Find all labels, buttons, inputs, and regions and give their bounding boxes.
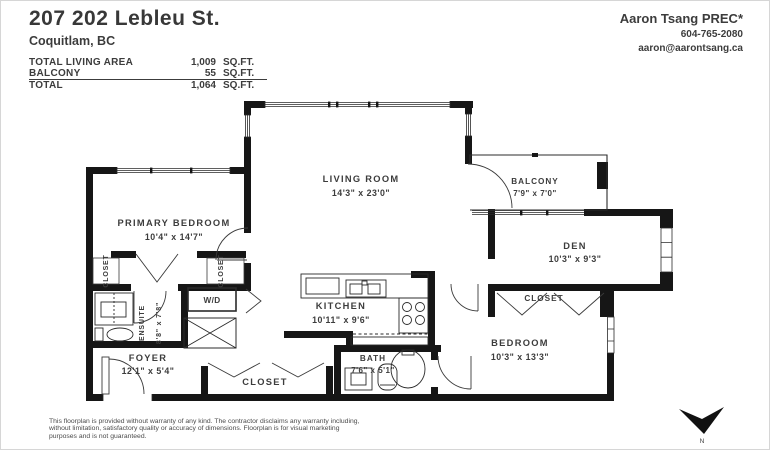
north-label: N (700, 438, 705, 445)
closet-label-vertical-left: CLOSET (103, 254, 110, 287)
disclaimer: This floorplan is provided without warra… (49, 418, 389, 440)
room-label-kitchen: KITCHEN (316, 301, 366, 311)
room-label-foyer: FOYER (129, 353, 168, 363)
closet-label-bedroom: CLOSET (524, 294, 563, 303)
room-label-den: DEN (563, 241, 587, 251)
room-dims-bath: 7'6" x 5'1" (351, 366, 395, 375)
room-label-bedroom: BEDROOM (491, 338, 549, 348)
room-dims-balcony: 7'9" x 7'0" (513, 189, 557, 198)
room-label-ensuite: ENSUITE (139, 305, 146, 341)
north-arrow-icon: N (679, 407, 724, 445)
room-dims-bedroom: 10'3" x 13'3" (491, 352, 549, 362)
disclaimer-line: purposes and is not guaranteed. (49, 433, 389, 440)
floor-plan-page: 207 202 Lebleu St. Coquitlam, BC TOTAL L… (0, 0, 770, 450)
room-dims-primary-bedroom: 10'4" x 14'7" (145, 232, 203, 242)
room-label-living-room: LIVING ROOM (323, 174, 400, 184)
room-dims-kitchen: 10'11" x 9'6" (312, 315, 370, 325)
windows (103, 101, 672, 401)
closet-label-vertical-right: CLOSET (218, 254, 225, 287)
room-dims-den: 10'3" x 9'3" (549, 254, 602, 264)
ensuite-fixtures (95, 293, 133, 341)
washer-dryer-label: W/D (203, 296, 220, 305)
room-labels: LIVING ROOM 14'3" x 23'0" PRIMARY BEDROO… (103, 174, 601, 387)
room-label-primary-bedroom: PRIMARY BEDROOM (118, 218, 231, 228)
room-dims-foyer: 12'1" x 5'4" (122, 366, 175, 376)
floor-plan-drawing: LIVING ROOM 14'3" x 23'0" PRIMARY BEDROO… (1, 1, 770, 450)
room-label-bath: BATH (360, 354, 386, 363)
disclaimer-line: This floorplan is provided without warra… (49, 418, 389, 425)
room-dims-ensuite: 8'8" x 7'8" (156, 302, 163, 344)
disclaimer-line: without limitation, satisfactory quality… (49, 425, 389, 432)
room-dims-living-room: 14'3" x 23'0" (332, 188, 390, 198)
room-label-balcony: BALCONY (511, 177, 558, 186)
closet-label-hall: CLOSET (242, 377, 288, 387)
